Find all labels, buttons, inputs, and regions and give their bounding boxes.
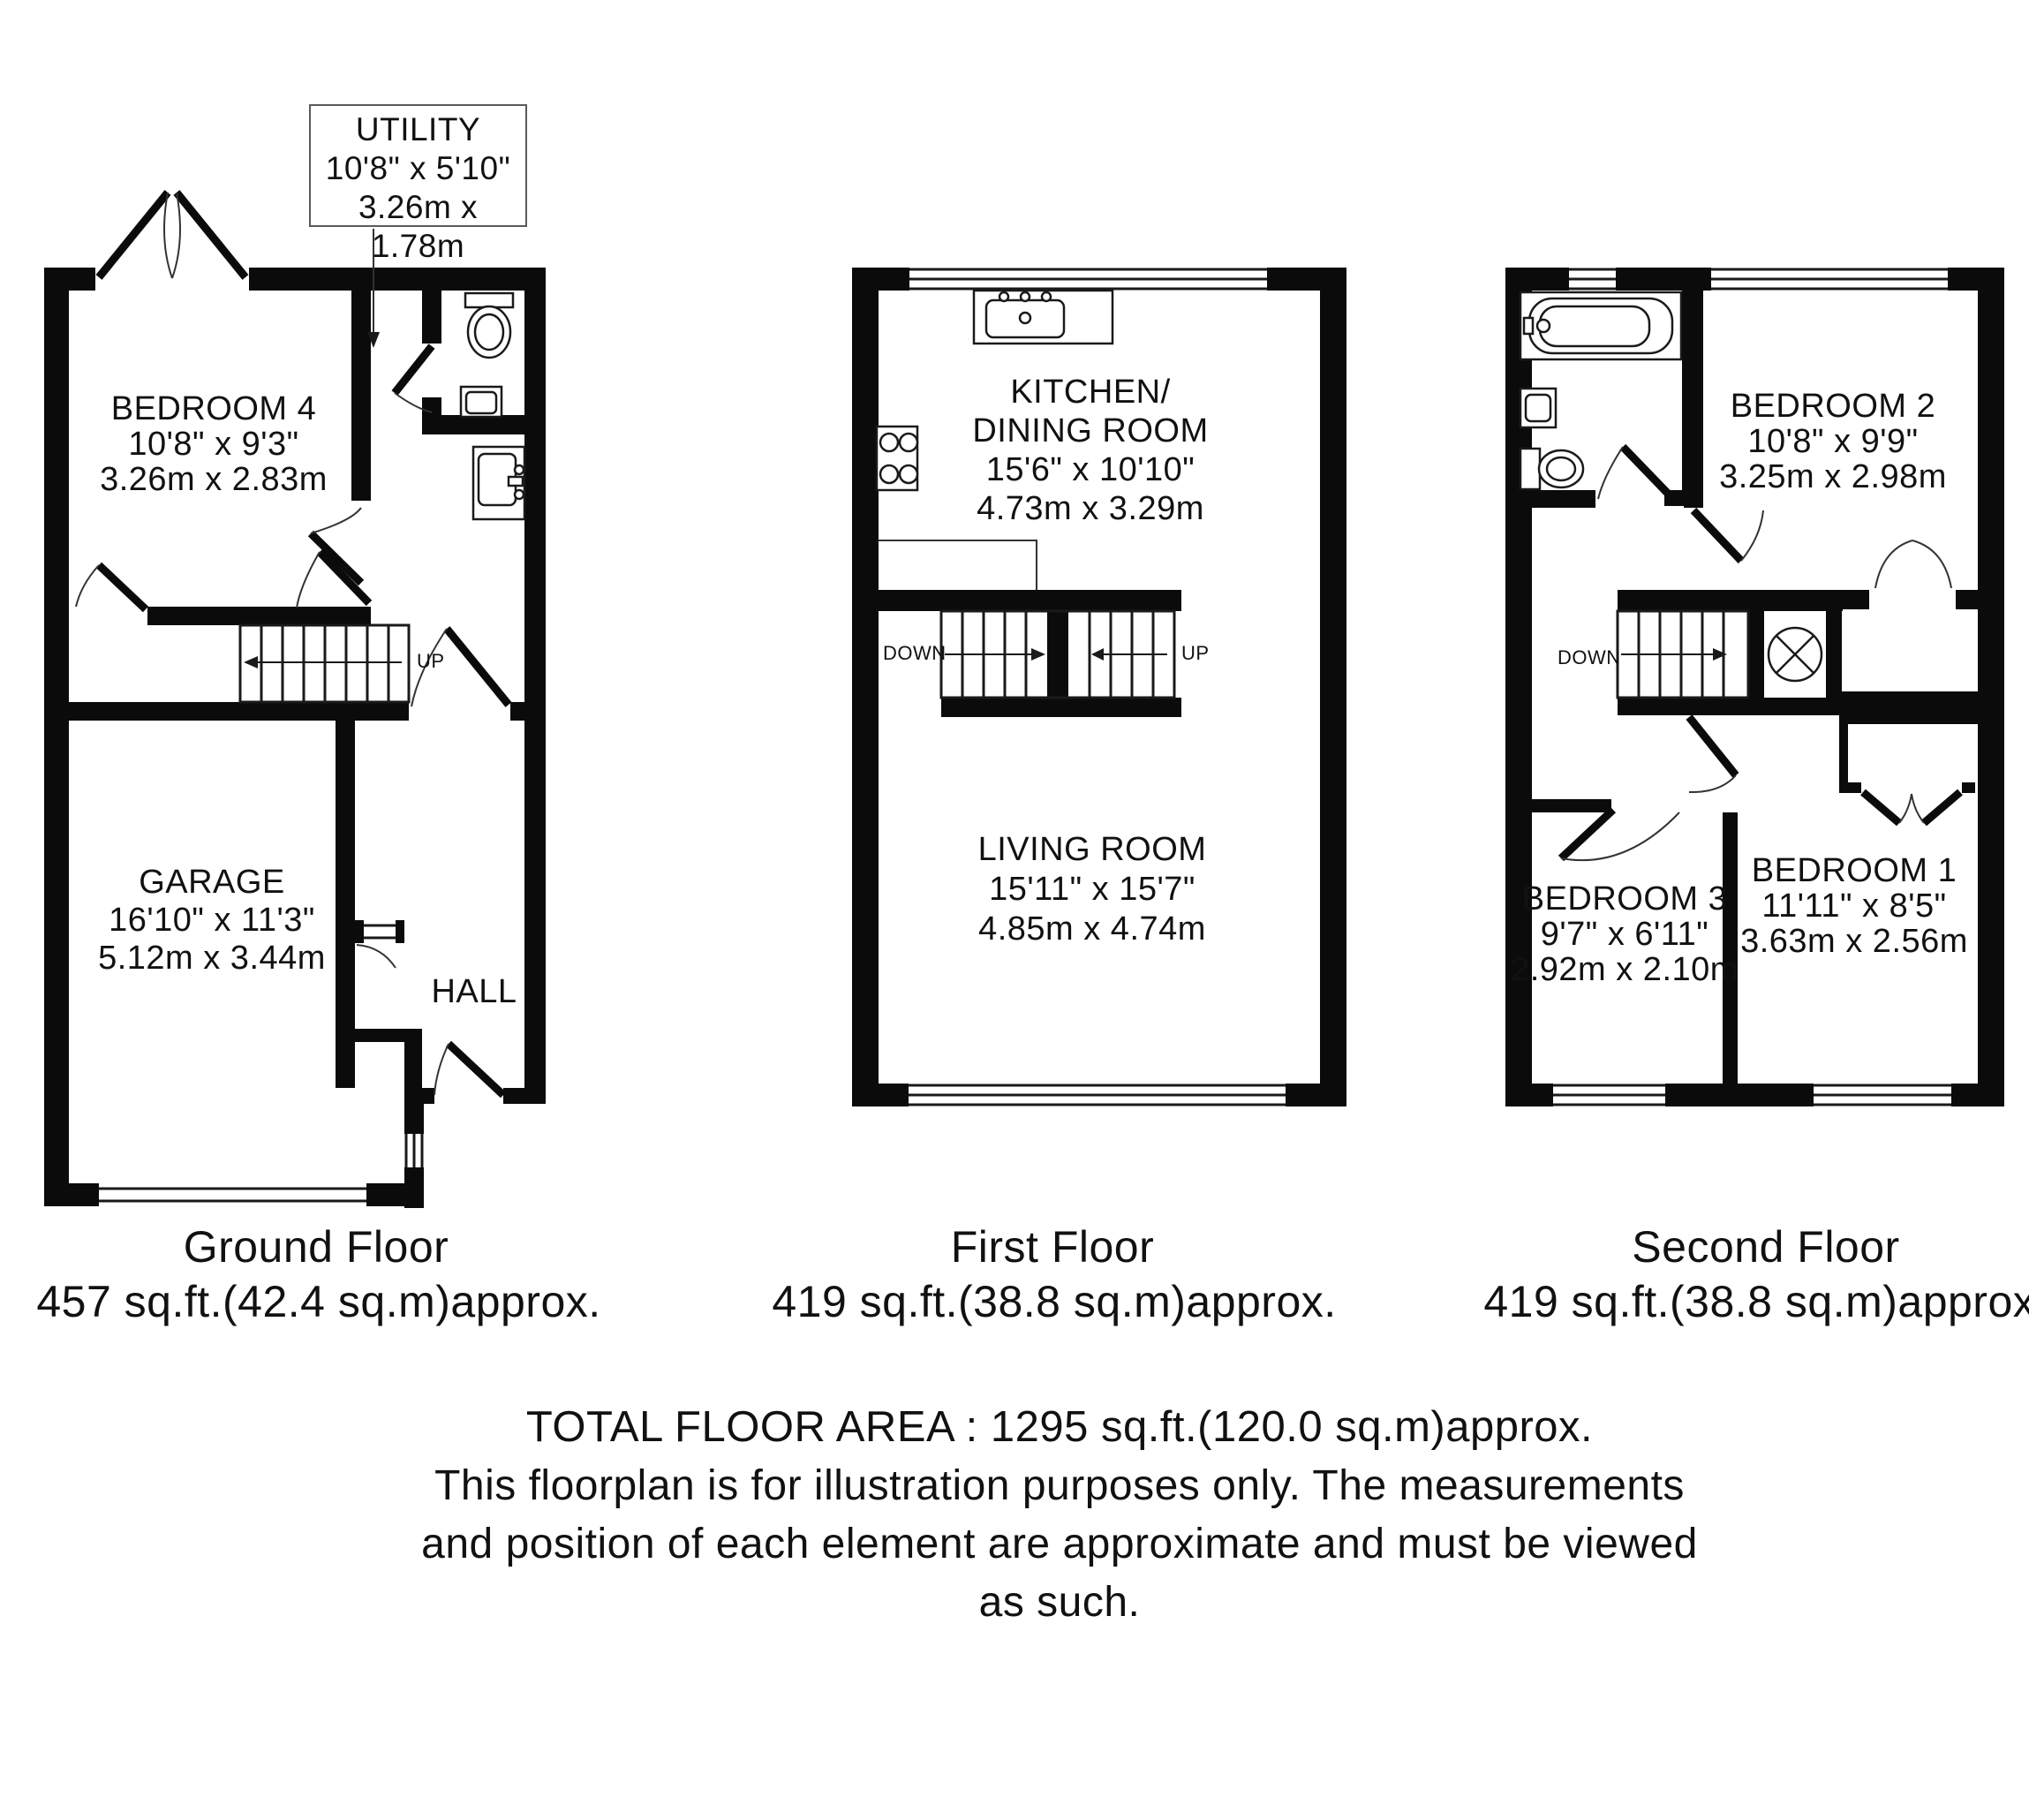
bedroom1-imperial: 11'11" x 8'5" [1740,888,1968,924]
bedroom4-name: BEDROOM 4 [100,391,328,427]
landing-rooflight-icon [1769,628,1822,681]
disclaimer-line-2: and position of each element are approxi… [421,1515,1698,1574]
ground-fixtures [461,293,524,519]
ground-stairs [240,625,409,702]
living-imperial: 15'11" x 15'7" [978,870,1207,910]
kitchen-name-line2: DINING ROOM [972,412,1208,450]
bedroom1-metric: 3.63m x 2.56m [1740,924,1968,959]
room-label-kitchen-dining: KITCHEN/ DINING ROOM 15'6" x 10'10" 4.73… [972,373,1208,528]
caption-ground-floor-area: 457 sq.ft.(42.4 sq.m)approx. [36,1276,600,1327]
bedroom4-metric: 3.26m x 2.83m [100,462,328,497]
utility-callout-metric: 3.26m x 1.78m [311,188,525,266]
hall-name: HALL [431,974,517,1009]
disclaimer-line-3: as such. [421,1574,1698,1632]
room-label-bedroom-1: BEDROOM 1 11'11" x 8'5" 3.63m x 2.56m [1740,853,1968,959]
kitchen-name-line1: KITCHEN/ [972,373,1208,412]
utility-callout-title: UTILITY [311,110,525,149]
kitchen-boundary [879,540,1037,590]
second-stairs [1618,611,1748,698]
first-stairs-up-label: UP [1181,642,1210,665]
bedroom4-imperial: 10'8" x 9'3" [100,427,328,462]
caption-second-floor-area: 419 sq.ft.(38.8 sq.m)approx. [1483,1276,2029,1327]
room-label-bedroom-3: BEDROOM 3 9'7" x 6'11" 2.92m x 2.10m [1511,881,1739,987]
room-label-hall: HALL [431,974,517,1009]
living-metric: 4.85m x 4.74m [978,910,1207,949]
second-fixtures [1520,292,1681,489]
bathroom-toilet-cistern-icon [1520,449,1540,489]
total-floor-area-text: TOTAL FLOOR AREA : 1295 sq.ft.(120.0 sq.… [526,1402,1593,1452]
kitchen-imperial: 15'6" x 10'10" [972,450,1208,489]
bedroom2-imperial: 10'8" x 9'9" [1719,424,1947,459]
garage-imperial: 16'10" x 11'3" [98,902,326,940]
bedroom3-name: BEDROOM 3 [1511,881,1739,917]
ground-floor-plan [44,193,546,1208]
kitchen-metric: 4.73m x 3.29m [972,489,1208,528]
room-label-bedroom-4: BEDROOM 4 10'8" x 9'3" 3.26m x 2.83m [100,391,328,497]
first-up-arrow [1091,648,1104,661]
bedroom2-name: BEDROOM 2 [1719,389,1947,424]
ground-stairs-up-label: UP [417,650,445,673]
room-label-living-room: LIVING ROOM 15'11" x 15'7" 4.85m x 4.74m [978,830,1207,949]
toilet-cistern-icon [465,293,513,307]
caption-second-floor-title: Second Floor [1632,1221,1899,1272]
second-down-arrow [1713,648,1727,661]
utility-callout-imperial: 10'8" x 5'10" [311,149,525,188]
disclaimer-text: This floorplan is for illustration purpo… [421,1457,1698,1632]
disclaimer-line-1: This floorplan is for illustration purpo… [421,1457,1698,1515]
caption-ground-floor-title: Ground Floor [184,1221,449,1272]
first-stairs-down-label: DOWN [883,642,947,665]
room-label-bedroom-2: BEDROOM 2 10'8" x 9'9" 3.25m x 2.98m [1719,389,1947,495]
caption-first-floor-title: First Floor [951,1221,1155,1272]
garage-name: GARAGE [98,864,326,902]
bedroom3-imperial: 9'7" x 6'11" [1511,917,1739,952]
bedroom1-name: BEDROOM 1 [1740,853,1968,888]
bedroom3-metric: 2.92m x 2.10m [1511,952,1739,987]
room-label-garage: GARAGE 16'10" x 11'3" 5.12m x 3.44m [98,864,326,978]
floorplan-page: UTILITY 10'8" x 5'10" 3.26m x 1.78m BEDR… [0,0,2029,1820]
bedroom2-metric: 3.25m x 2.98m [1719,459,1947,495]
first-down-arrow [1031,648,1045,661]
garage-metric: 5.12m x 3.44m [98,940,326,978]
utility-callout: UTILITY 10'8" x 5'10" 3.26m x 1.78m [309,104,527,227]
caption-first-floor-area: 419 sq.ft.(38.8 sq.m)approx. [772,1276,1336,1327]
living-name: LIVING ROOM [978,830,1207,870]
second-stairs-down-label: DOWN [1558,646,1621,669]
ground-stairs-arrow [244,656,258,668]
